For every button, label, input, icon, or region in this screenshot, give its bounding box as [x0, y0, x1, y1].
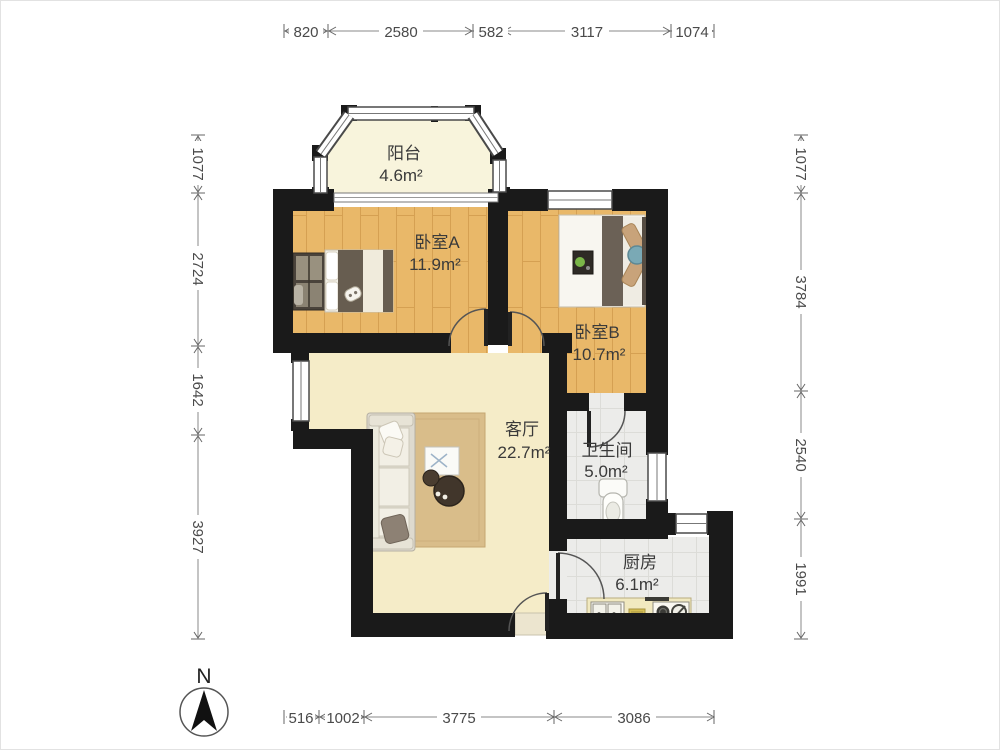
dim-right-2: 2540	[792, 438, 809, 471]
dimension-left: 1077 2724 1642 3927	[189, 135, 206, 639]
bedA-duvet-dark	[338, 250, 363, 312]
bedroomB-area-label: 10.7m²	[573, 345, 626, 364]
dim-top-0: 820	[293, 24, 318, 41]
bedroomA-area-label: 11.9m²	[409, 255, 461, 274]
bedroomA-name-label: 卧室A	[414, 233, 460, 252]
dim-left-3: 3927	[189, 520, 206, 553]
dim-bottom-1: 1002	[326, 710, 359, 727]
balcony-area-label: 4.6m²	[379, 166, 423, 185]
dim-right-1: 3784	[792, 275, 809, 308]
bedA-pillow-corner	[294, 285, 303, 305]
dim-left-0: 1077	[189, 147, 206, 180]
balcony-name-label: 阳台	[387, 144, 421, 163]
dimension-bottom: 516 1002 3775 3086	[284, 708, 714, 727]
sofa-cushion-2	[379, 468, 409, 506]
compass-needle-icon	[191, 690, 217, 731]
kitchen-name-label: 厨房	[623, 553, 657, 572]
bedA-pillow-1	[326, 252, 338, 280]
kitchen-area-label: 6.1m²	[615, 575, 659, 594]
bedB-duvet-dark	[602, 216, 623, 306]
dim-left-1: 2724	[189, 252, 206, 285]
living-furniture	[367, 413, 485, 551]
balcony-window-top	[348, 107, 474, 120]
bedroomB-furniture	[559, 215, 650, 307]
living-name-label: 客厅	[505, 420, 539, 439]
bedroomB-name-label: 卧室B	[574, 323, 619, 342]
balcony-window-right	[493, 160, 506, 192]
dim-top-3: 3117	[571, 24, 603, 41]
floor-plan-svg: 阳台 4.6m² 卧室A 11.9m² 卧室B 10.7m² 客厅 22.7m²…	[1, 1, 1000, 751]
dim-bottom-2: 3775	[442, 710, 475, 727]
entry-threshold	[515, 613, 549, 635]
dim-right-0: 1077	[792, 147, 809, 180]
dim-top-4: 1074	[675, 24, 708, 41]
bedA-duvet-edge	[383, 250, 393, 312]
compass: N	[180, 665, 228, 736]
dim-left-2: 1642	[189, 373, 206, 406]
dimension-right: 1077 3784 2540 1991	[792, 135, 809, 639]
sofa-pillow-2	[382, 436, 404, 458]
balcony-sill	[334, 193, 498, 202]
bedroomB-window	[548, 191, 612, 209]
kitchen-window	[676, 514, 707, 533]
utensil-rack	[645, 597, 669, 601]
dim-bottom-3: 3086	[617, 710, 650, 727]
dim-top-2: 582	[478, 24, 503, 41]
bedB-plant	[575, 257, 585, 267]
living-area-label: 22.7m²	[498, 443, 551, 462]
bedA-pillow-2	[326, 282, 338, 310]
dimension-top: 820 2580 582 3117 1074	[284, 22, 714, 41]
compass-north-label: N	[196, 665, 211, 688]
bedroomA-door-threshold	[451, 333, 488, 355]
coffee-table-small	[423, 470, 439, 486]
bedroomA-furniture	[293, 250, 393, 312]
bathroom-area-label: 5.0m²	[584, 462, 628, 481]
living-window	[293, 361, 309, 421]
bedA-duvet-light	[363, 250, 383, 312]
dim-bottom-0: 516	[288, 710, 313, 727]
bathroom-name-label: 卫生间	[582, 441, 633, 460]
bathroom-window	[648, 453, 666, 501]
dim-top-1: 2580	[384, 24, 417, 41]
bedroomB-door-threshold	[508, 333, 544, 355]
balcony-window-left	[314, 157, 327, 193]
dim-right-3: 1991	[792, 562, 809, 595]
floor-plan-canvas: 阳台 4.6m² 卧室A 11.9m² 卧室B 10.7m² 客厅 22.7m²…	[0, 0, 1000, 750]
